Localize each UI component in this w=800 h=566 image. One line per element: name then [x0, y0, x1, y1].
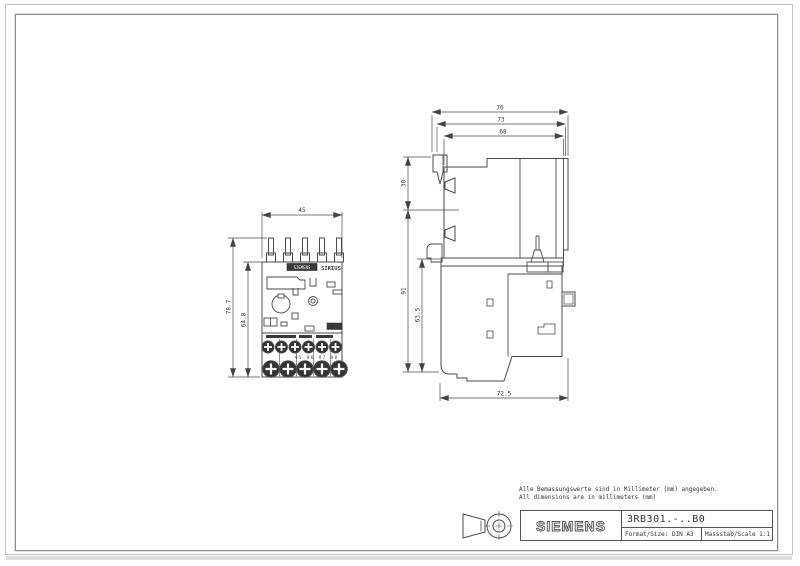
- scale-label: Massstab/Scale 1:1: [705, 531, 770, 538]
- front-terminal-block: 95 96 97 98: [262, 333, 347, 377]
- front-series-text: SIRIUS: [321, 266, 341, 272]
- note-german: Alle Bemassungswerte sind in Millimeter …: [519, 486, 718, 494]
- company-logo-cell: SIEMENS: [521, 511, 622, 540]
- front-model-text: 3RB30: [329, 325, 340, 329]
- drawing-sheet: SIEMENS SIRIUS: [0, 0, 800, 566]
- front-dim-height-total: 78.7: [226, 238, 268, 377]
- first-angle-projection-icon: [458, 506, 514, 546]
- side-dim-depth-body-value: 68: [499, 129, 507, 136]
- side-dim-height-total-value: 91: [401, 287, 408, 295]
- note-english: All dimensions are in millimeters (mm): [519, 494, 718, 502]
- main-terminal-screws: [263, 361, 347, 377]
- front-view-pins: [267, 238, 344, 262]
- dimension-notes: Alle Bemassungswerte sind in Millimeter …: [519, 486, 718, 501]
- front-dim-height-body: 64.8: [241, 262, 263, 377]
- side-dim-top-section: 30: [401, 157, 460, 210]
- title-block: SIEMENS 3RB301.-..B0 Format/Size: DIN A3…: [520, 510, 773, 541]
- side-dim-height-body-value: 63.5: [415, 307, 422, 322]
- front-dim-height-total-value: 78.7: [226, 299, 233, 314]
- part-number: 3RB301.-..B0: [627, 514, 705, 525]
- technical-drawing: SIEMENS SIRIUS: [0, 0, 800, 566]
- title-block-right: 3RB301.-..B0 Format/Size: DIN A3 Masssta…: [622, 511, 772, 540]
- test-button: [309, 297, 318, 306]
- side-dim-height-body: 63.5: [415, 259, 441, 372]
- side-lower-body: [441, 266, 575, 381]
- side-dim-height-total: 91: [401, 210, 440, 372]
- aux-terminal-screws: [262, 341, 342, 353]
- side-dim-depth-total-value: 76: [496, 105, 504, 112]
- front-dim-width-value: 45: [298, 207, 306, 214]
- part-number-row: 3RB301.-..B0: [622, 511, 772, 528]
- side-coupling: [427, 236, 564, 272]
- front-model-label: 3RB30: [327, 323, 342, 330]
- front-brand-text: SIEMENS: [294, 265, 311, 270]
- scale-cell: Massstab/Scale 1:1: [702, 528, 772, 540]
- siemens-logo: SIEMENS: [536, 518, 606, 534]
- side-dim-top-section-value: 30: [401, 180, 408, 188]
- side-dim-depth-body: 68: [444, 129, 564, 166]
- title-block-meta-row: Format/Size: DIN A3 Massstab/Scale 1:1: [622, 528, 772, 540]
- format-label: Format/Size: DIN A3: [625, 531, 694, 538]
- side-view: 76 73 68 30: [401, 105, 576, 402]
- side-rear-clip: [433, 155, 447, 184]
- side-dim-depth-base-value: 72.5: [497, 391, 512, 398]
- front-dim-height-body-value: 64.8: [241, 312, 248, 327]
- front-brand-label: SIEMENS: [287, 264, 317, 271]
- terminal-numbers: 95 96 97 98: [295, 355, 338, 360]
- front-view: SIEMENS SIRIUS: [226, 207, 348, 377]
- format-cell: Format/Size: DIN A3: [622, 528, 702, 540]
- side-upper-body: [444, 159, 568, 259]
- side-dim-depth-mid-value: 73: [497, 117, 505, 124]
